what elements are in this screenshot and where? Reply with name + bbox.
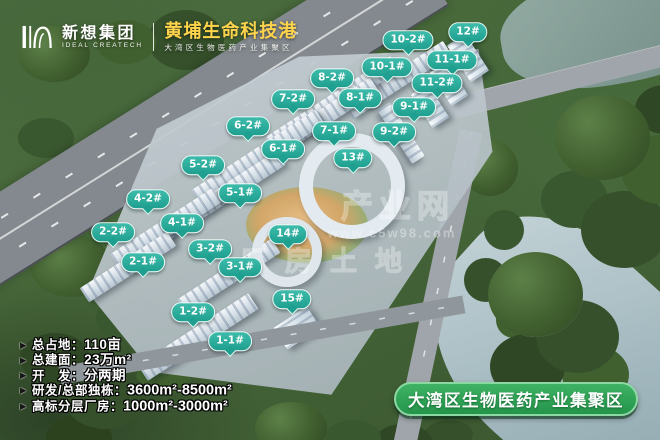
badge-11-1: 11-1# — [426, 50, 477, 70]
badge-3-1: 3-1# — [218, 257, 262, 277]
project-stats-list: ▶总占地：110亩 ▶总建面：23万m² ▶开 发：分两期 ▶研发/总部独栋：3… — [20, 337, 232, 414]
project-subtitle: 大湾区生物医药产业集聚区 — [164, 42, 297, 53]
stat-value: 23万m² — [84, 352, 132, 367]
badge-2-1: 2-1# — [121, 252, 165, 272]
badge-1-2: 1-2# — [171, 302, 215, 322]
tree-cluster — [555, 95, 650, 180]
badge-5-1: 5-1# — [218, 183, 262, 203]
stat-value: 分两期 — [84, 368, 126, 383]
badge-11-2: 11-2# — [411, 73, 462, 93]
badge-8-1: 8-1# — [338, 88, 382, 108]
stat-label: 研发/总部独栋： — [32, 384, 127, 398]
badge-8-2: 8-2# — [310, 68, 354, 88]
triangle-bullet-icon: ▶ — [20, 368, 27, 383]
triangle-bullet-icon: ▶ — [20, 383, 27, 398]
watermark-tagline: 厂房土地 — [240, 240, 420, 279]
badge-10-2: 10-2# — [382, 30, 433, 50]
project-name: 黄埔生命科技港 — [164, 21, 297, 42]
badge-12: 12# — [448, 22, 487, 42]
badge-4-2: 4-2# — [126, 189, 170, 209]
logo-lockup: 新想集团 IDEAL CREATECH 黄埔生命科技港 大湾区生物医药产业集聚区 — [20, 20, 297, 54]
tree-cluster — [255, 402, 327, 440]
stat-rd-hq-size: ▶研发/总部独栋：3600m²-8500m² — [20, 383, 232, 398]
stat-value: 110亩 — [84, 337, 121, 352]
cluster-banner: 大湾区生物医药产业集聚区 — [394, 382, 638, 416]
badge-15: 15# — [272, 289, 311, 309]
badge-10-1: 10-1# — [361, 57, 412, 77]
badge-2-2: 2-2# — [91, 222, 135, 242]
group-logo-icon — [20, 20, 54, 54]
company-name-block: 新想集团 IDEAL CREATECH — [62, 25, 143, 50]
stat-value: 1000m²-3000m² — [123, 398, 228, 414]
stat-label: 开 发： — [32, 369, 84, 383]
badge-7-2: 7-2# — [271, 89, 315, 109]
badge-13: 13# — [333, 148, 372, 168]
badge-14: 14# — [268, 224, 307, 244]
stat-development-phases: ▶开 发：分两期 — [20, 368, 232, 383]
badge-6-1: 6-1# — [261, 139, 305, 159]
triangle-bullet-icon: ▶ — [20, 399, 27, 414]
badge-4-1: 4-1# — [160, 213, 204, 233]
logo-divider — [153, 23, 155, 51]
triangle-bullet-icon: ▶ — [20, 338, 27, 353]
badge-9-2: 9-2# — [372, 122, 416, 142]
triangle-bullet-icon: ▶ — [20, 353, 27, 368]
company-name: 新想集团 — [62, 25, 143, 43]
badge-9-1: 9-1# — [392, 97, 436, 117]
stat-total-land: ▶总占地：110亩 — [20, 337, 232, 352]
company-name-en: IDEAL CREATECH — [62, 42, 143, 49]
stat-label: 总占地： — [32, 338, 84, 352]
watermark-brand: 产业网 — [341, 181, 455, 227]
badge-5-2: 5-2# — [181, 155, 225, 175]
badge-3-2: 3-2# — [188, 239, 232, 259]
stat-total-floor-area: ▶总建面：23万m² — [20, 352, 232, 367]
watermark-url: www.c5w98.com — [328, 226, 457, 241]
stat-label: 总建面： — [32, 353, 84, 367]
project-name-block: 黄埔生命科技港 大湾区生物医药产业集聚区 — [164, 21, 297, 53]
stat-factory-size: ▶高标分层厂房：1000m²-3000m² — [20, 399, 232, 414]
aerial-render-poster: 产业网 www.c5w98.com 厂房土地 10-2# 12# 10-1# 1… — [0, 0, 660, 440]
stat-label: 高标分层厂房： — [32, 399, 123, 413]
badge-6-2: 6-2# — [226, 116, 270, 136]
tree-cluster — [488, 252, 583, 337]
stat-value: 3600m²-8500m² — [127, 383, 232, 399]
badge-7-1: 7-1# — [312, 121, 356, 141]
